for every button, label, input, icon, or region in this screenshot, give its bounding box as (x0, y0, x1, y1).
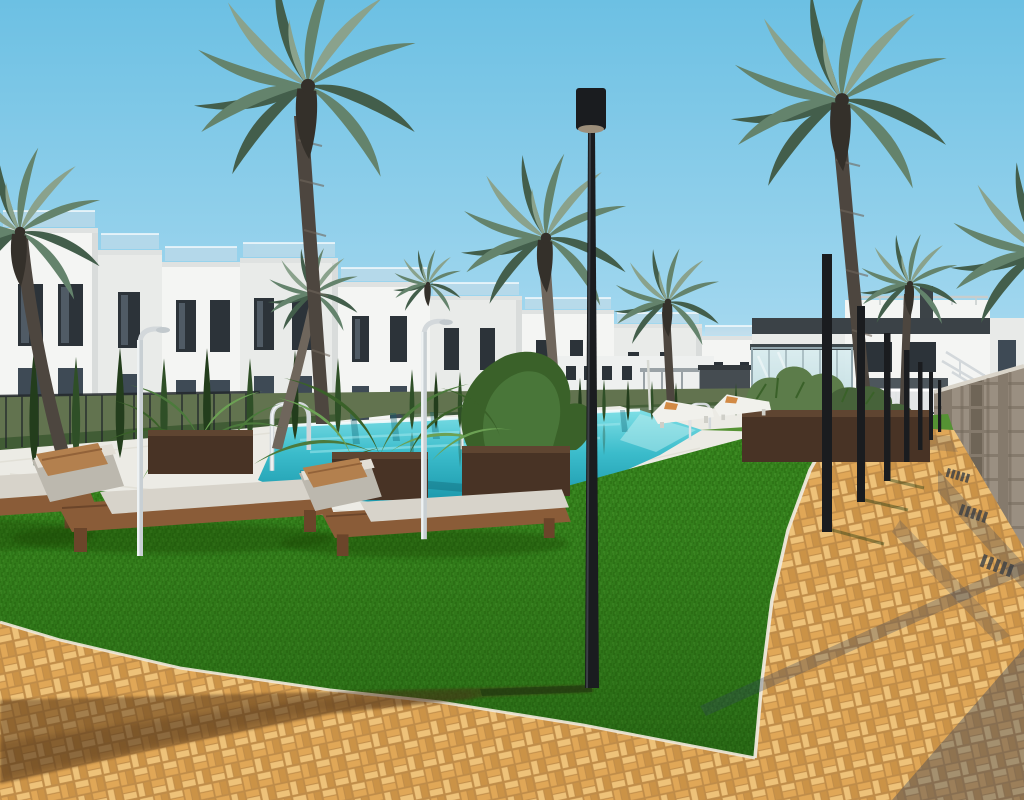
real-estate-render: New-build residential complex: white tow… (0, 0, 1024, 800)
scene-render (0, 0, 1024, 800)
